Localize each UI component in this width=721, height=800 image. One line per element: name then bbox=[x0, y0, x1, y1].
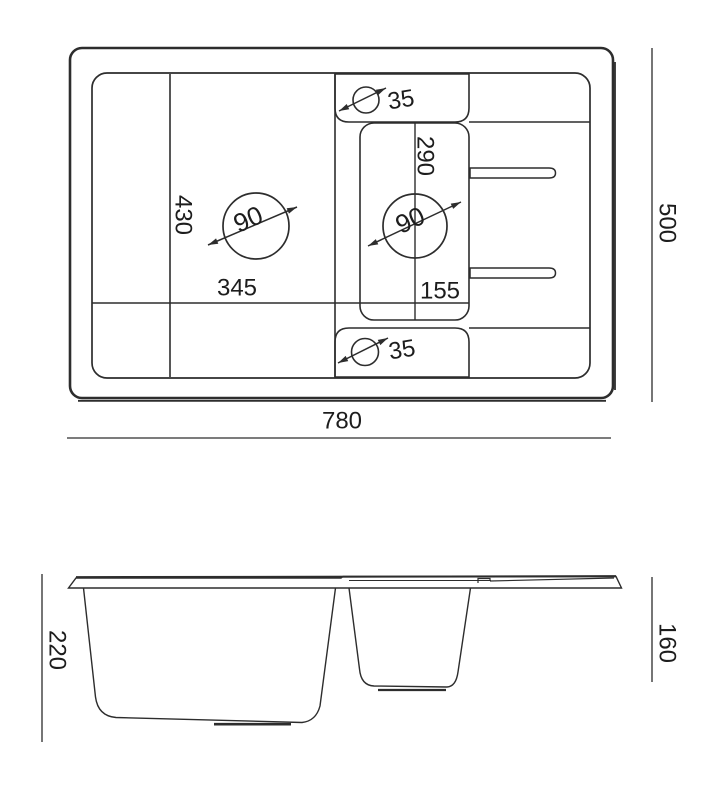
main-bowl-depth-label: 430 bbox=[170, 195, 197, 235]
small-bowl-depth-label: 290 bbox=[412, 136, 439, 176]
bottom-tap-hole-diameter-arrow bbox=[338, 338, 388, 363]
small-drain-diameter-label: 90 bbox=[391, 200, 430, 239]
inner-rim-outline bbox=[92, 73, 590, 378]
small-bowl-width-label: 155 bbox=[420, 278, 460, 305]
top-view: 430 345 290 155 90 90 35 35 780 500 bbox=[67, 48, 681, 438]
overall-width-label: 780 bbox=[322, 408, 362, 435]
main-bowl-profile bbox=[84, 588, 336, 723]
overall-depth-label: 500 bbox=[654, 203, 681, 243]
drainboard-surface-line bbox=[490, 578, 614, 581]
outer-rim-outline bbox=[70, 48, 613, 398]
main-drain-diameter-label: 90 bbox=[229, 200, 267, 239]
side-view: 220 160 bbox=[42, 574, 681, 742]
top-tap-hole-circle bbox=[353, 87, 379, 113]
bottom-tap-hole-circle bbox=[352, 339, 379, 366]
main-bowl-height-label: 220 bbox=[44, 630, 71, 670]
top-tap-hole-label: 35 bbox=[386, 85, 417, 116]
sink-technical-drawing: 430 345 290 155 90 90 35 35 780 500 220 … bbox=[0, 0, 721, 800]
countertop-profile bbox=[69, 577, 622, 589]
outer-rim-shadow bbox=[78, 62, 615, 401]
main-bowl-width-label: 345 bbox=[217, 275, 257, 302]
drawing-canvas: 430 345 290 155 90 90 35 35 780 500 220 … bbox=[0, 0, 721, 800]
drainboard-groove-bottom bbox=[470, 268, 556, 278]
drainboard-groove-top bbox=[470, 168, 556, 178]
small-bowl-profile bbox=[349, 588, 471, 687]
small-bowl-height-label: 160 bbox=[654, 623, 681, 663]
bottom-tap-hole-label: 35 bbox=[387, 335, 418, 366]
rim-top-edge bbox=[76, 576, 616, 577]
